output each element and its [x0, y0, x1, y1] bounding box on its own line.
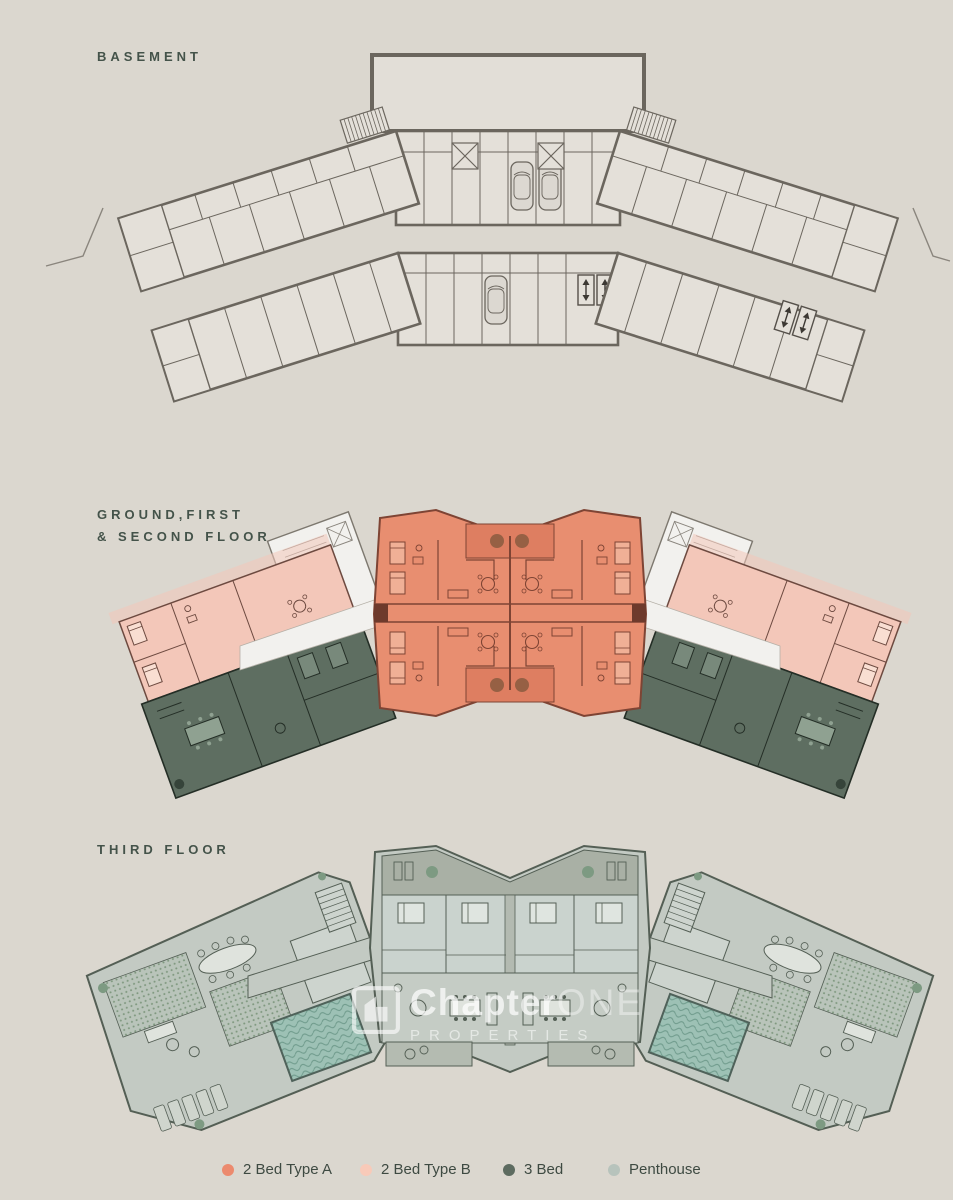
- roof-terrace: [382, 850, 638, 895]
- ground-floor-plan: [0, 500, 953, 800]
- site-boundary-right: [913, 208, 950, 261]
- legend-item-penthouse: Penthouse: [608, 1161, 701, 1178]
- legend-dot-penthouse: [608, 1164, 620, 1176]
- elevator-icon: [578, 275, 594, 305]
- legend-item-3-bed: 3 Bed: [503, 1161, 563, 1178]
- car-icon: [485, 276, 507, 324]
- ground-right-wing: [600, 512, 916, 798]
- third-left-penthouse-wing: [76, 863, 412, 1140]
- third-central-block: [370, 846, 650, 1072]
- legend-label-2-bed-type-b: 2 Bed Type B: [381, 1161, 471, 1178]
- third-right-penthouse-wing: [608, 863, 944, 1140]
- basement-lower-parking: [398, 253, 618, 345]
- legend-dot-2-bed-type-a: [222, 1164, 234, 1176]
- legend-item-2-bed-type-a: 2 Bed Type A: [222, 1161, 332, 1178]
- basement-upper-parking: [396, 131, 620, 225]
- legend-label-3-bed: 3 Bed: [524, 1161, 563, 1178]
- brochure-page: BASEMENT: [0, 0, 953, 1200]
- legend-item-2-bed-type-b: 2 Bed Type B: [360, 1161, 471, 1178]
- car-icon: [511, 162, 533, 210]
- legend-dot-2-bed-type-b: [360, 1164, 372, 1176]
- site-boundary-left: [46, 208, 103, 266]
- third-floor-plan: [0, 840, 953, 1140]
- basement-top-hall: [372, 55, 644, 131]
- legend-label-2-bed-type-a: 2 Bed Type A: [243, 1161, 332, 1178]
- basement-floor-plan: [0, 42, 953, 410]
- legend-dot-3-bed: [503, 1164, 515, 1176]
- legend-label-penthouse: Penthouse: [629, 1161, 701, 1178]
- ground-left-wing: [104, 512, 420, 798]
- ground-central-block: [374, 510, 646, 716]
